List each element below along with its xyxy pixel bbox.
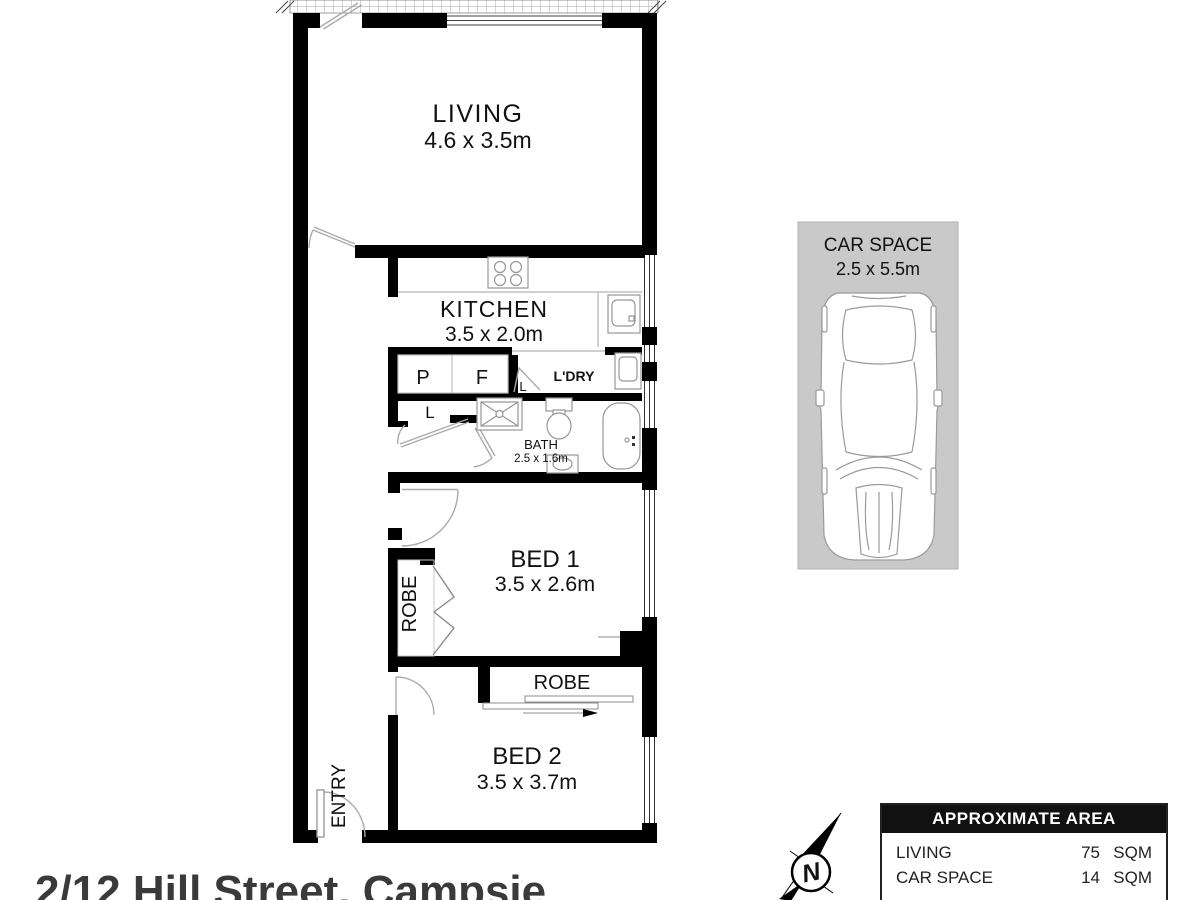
linen-ldry-label: L: [519, 379, 526, 394]
area-row-label: LIVING: [896, 840, 1060, 865]
kitchen-label: KITCHEN: [440, 296, 548, 322]
bathtub-icon: [603, 403, 640, 469]
door-entry-leaf: [317, 790, 324, 837]
wall-left: [293, 13, 308, 843]
wall-bottom-a: [293, 830, 318, 843]
wall-living-bottom: [355, 245, 645, 258]
kitchen-dims: 3.5 x 2.0m: [445, 323, 543, 346]
approximate-area-table: APPROXIMATE AREA LIVING 75 SQM CAR SPACE…: [880, 803, 1168, 900]
car-icon: [816, 293, 942, 560]
wall-robe2-left: [478, 661, 490, 703]
living-label: LIVING: [433, 100, 524, 128]
pantry-fridge-outline: [398, 355, 508, 393]
address-text: 2/12 Hill Street, Campsie: [35, 870, 795, 900]
wall-kitchen-left: [388, 257, 398, 297]
wall-right-b: [642, 327, 657, 345]
fridge-label: F: [476, 367, 488, 389]
wall-robe1-cap: [420, 548, 435, 565]
wall-robe1-left: [388, 548, 398, 658]
area-table-title: APPROXIMATE AREA: [882, 805, 1166, 833]
entry-label: ENTRY: [329, 764, 350, 828]
area-table-row-living: LIVING 75 SQM: [896, 840, 1152, 865]
area-row-value: 75: [1060, 840, 1100, 865]
laundry-label: L'DRY: [554, 368, 596, 384]
door-bed1: [402, 490, 458, 547]
wall-hall-lower: [388, 715, 398, 833]
window-ldry: [645, 345, 655, 362]
shower-icon: [477, 398, 522, 430]
wall-linen-stub: [388, 421, 408, 427]
window-bath: [645, 381, 655, 428]
slider-arrow-icon: [583, 709, 598, 717]
wall-kitchen-bottom: [388, 347, 512, 355]
car-space-dims: 2.5 x 5.5m: [836, 259, 920, 279]
linen-hall-label: L: [425, 403, 434, 422]
area-row-label: CAR SPACE: [896, 865, 1060, 890]
bed1-label: BED 1: [510, 546, 579, 573]
wall-linen-jamb: [450, 415, 478, 423]
window-bed1: [645, 490, 655, 617]
door-linen-hall: [398, 419, 469, 447]
window-bed2: [645, 737, 655, 823]
robe1-bifold-door: [433, 566, 454, 655]
floorplan-page: LIVING 4.6 x 3.5m KITCHEN 3.5 x 2.0m P F…: [0, 0, 1200, 900]
room-labels: LIVING 4.6 x 3.5m KITCHEN 3.5 x 2.0m P F…: [329, 100, 595, 828]
cooktop-icon: [488, 257, 528, 288]
pantry-label: P: [416, 367, 429, 389]
toilet-icon: [546, 398, 572, 439]
wall-right-c: [642, 362, 657, 381]
door-bed2: [396, 677, 434, 715]
wall-bed1-doorpost: [388, 528, 402, 540]
robe1-label: ROBE: [399, 576, 421, 633]
wall-right-a: [642, 13, 657, 255]
balcony-strip: [276, 0, 666, 13]
bath-dims: 2.5 x 1.6m: [514, 453, 568, 465]
bed1-dims: 3.5 x 2.6m: [495, 572, 595, 596]
robe2-label: ROBE: [534, 672, 591, 694]
car-space-label: CAR SPACE: [824, 235, 932, 256]
bed2-dims: 3.5 x 3.7m: [477, 770, 577, 794]
laundry-tub-icon: [615, 353, 641, 389]
wall-robe2-right: [620, 631, 642, 657]
wall-top-b: [362, 13, 447, 28]
wall-bed1-top: [388, 472, 642, 483]
bath-label: BATH: [524, 437, 558, 452]
wall-top-a: [293, 13, 320, 28]
floor-plan: LIVING 4.6 x 3.5m KITCHEN 3.5 x 2.0m P F…: [0, 0, 1200, 900]
door-bath: [474, 426, 495, 467]
window-kitchen: [645, 255, 655, 327]
window-living-top: [447, 16, 602, 25]
area-row-value: 14: [1060, 865, 1100, 890]
area-row-unit: SQM: [1100, 840, 1152, 865]
car-space: CAR SPACE 2.5 x 5.5m: [798, 222, 958, 569]
door-living: [309, 227, 355, 248]
bed2-label: BED 2: [492, 743, 561, 770]
kitchen-sink-icon: [608, 295, 640, 333]
wall-bed2-top: [388, 656, 642, 667]
area-row-unit: SQM: [1100, 865, 1152, 890]
wall-bed2-stub: [388, 656, 398, 672]
wall-right-d: [642, 428, 657, 490]
wall-bed1-endcap: [388, 472, 400, 493]
area-table-row-carspace: CAR SPACE 14 SQM: [896, 865, 1152, 890]
wall-right-e: [642, 617, 657, 737]
wall-bottom-b: [362, 830, 657, 843]
living-dims: 4.6 x 3.5m: [424, 127, 531, 153]
